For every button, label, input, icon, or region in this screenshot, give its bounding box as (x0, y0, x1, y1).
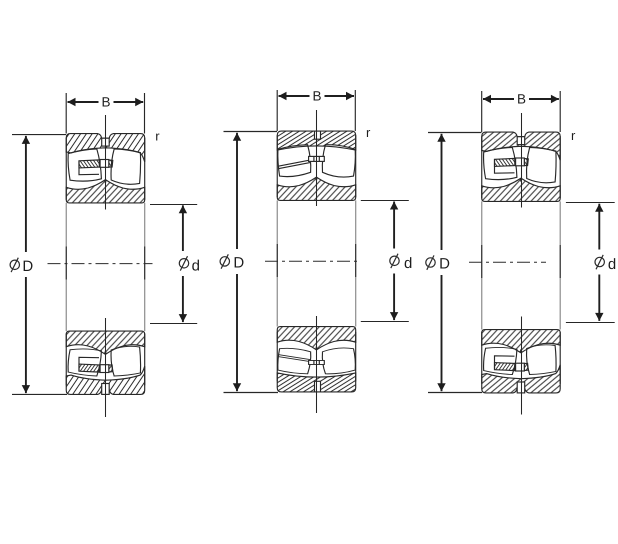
svg-text:r: r (571, 128, 576, 143)
svg-text:r: r (155, 129, 160, 144)
svg-text:B: B (517, 92, 526, 107)
svg-text:r: r (366, 125, 371, 140)
svg-text:d: d (608, 256, 616, 273)
svg-text:D: D (233, 255, 244, 272)
svg-text:d: d (192, 257, 200, 274)
svg-text:d: d (404, 255, 412, 272)
svg-text:D: D (439, 256, 450, 273)
svg-text:B: B (313, 89, 322, 104)
svg-text:B: B (102, 95, 111, 110)
svg-text:D: D (22, 258, 33, 275)
